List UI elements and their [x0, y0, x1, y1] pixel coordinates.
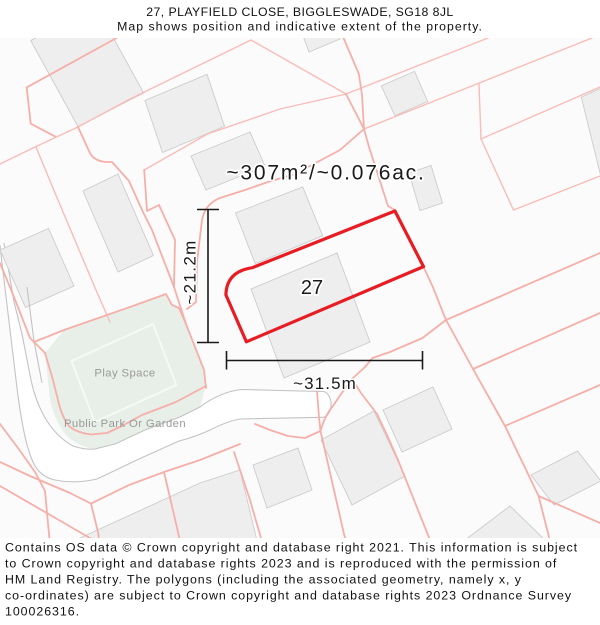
- svg-text:HM Land Registry. The polygons: HM Land Registry. The polygons (includin…: [5, 573, 522, 587]
- svg-text:27: 27: [301, 277, 323, 299]
- svg-text:Public Park Or Garden: Public Park Or Garden: [64, 418, 186, 430]
- svg-text:~21.2m: ~21.2m: [181, 239, 200, 304]
- svg-text:Play Space: Play Space: [94, 368, 155, 380]
- svg-text:100026316.: 100026316.: [5, 605, 80, 619]
- svg-text:co-ordinates) are subject to C: co-ordinates) are subject to Crown copyr…: [5, 589, 572, 603]
- svg-text:to Crown copyright and databas: to Crown copyright and database rights 2…: [5, 556, 557, 570]
- svg-text:Contains OS data © Crown copyr: Contains OS data © Crown copyright and d…: [5, 540, 578, 554]
- svg-text:27, PLAYFIELD CLOSE, BIGGLESWA: 27, PLAYFIELD CLOSE, BIGGLESWADE, SG18 8…: [146, 5, 453, 19]
- svg-text:~307m²/~0.076ac.: ~307m²/~0.076ac.: [226, 162, 425, 185]
- svg-text:Map shows position and indicat: Map shows position and indicative extent…: [117, 20, 483, 34]
- svg-text:~31.5m: ~31.5m: [293, 374, 357, 393]
